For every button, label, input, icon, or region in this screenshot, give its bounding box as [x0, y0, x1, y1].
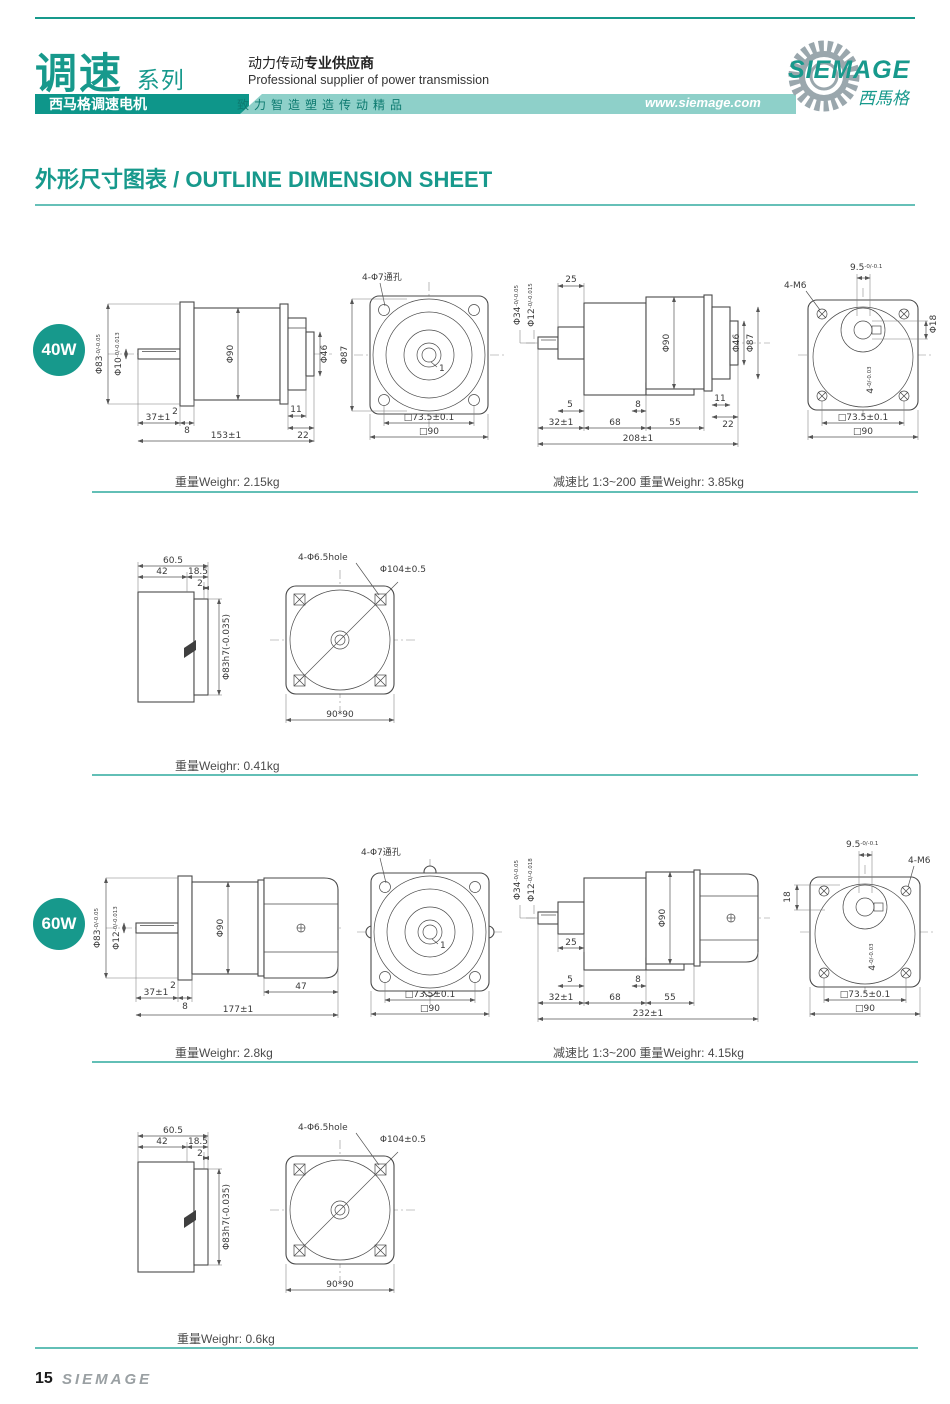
dim-label: Φ90 [216, 918, 226, 937]
tagline-en: Professional supplier of power transmiss… [248, 73, 489, 87]
dim-label: □73.5±0.1 [405, 990, 455, 1000]
dim-label: 42 [156, 1137, 167, 1147]
motor60-side-view: Φ83-0/-0.05 Φ12-0/-0.013 Φ90 2 37±1 8 47… [88, 840, 348, 1022]
dim-label: □90 [855, 1004, 875, 1014]
dim-label: 18 [783, 891, 793, 903]
dim-label: Φ87 [746, 334, 756, 353]
dim-label: 90*90 [326, 1280, 354, 1290]
dim-label: 60.5 [163, 556, 183, 566]
tagline-cn: 动力传动专业供应商 [248, 53, 374, 73]
badge-40w: 40W [33, 324, 85, 376]
dim-label: □73.5±0.1 [840, 990, 890, 1000]
gearmotor40-rear-view: 4-M6 9.5-0/-0.1 Φ18 4-0/-0.03 □73.5±0.1 … [778, 258, 950, 448]
dim-label: 25 [565, 275, 576, 285]
footer-brand: SIEMAGE [62, 1371, 152, 1388]
dim-label: 4-Φ6.5hole [298, 553, 348, 563]
dim-label: Φ90 [226, 344, 236, 363]
dim-label: 55 [664, 993, 675, 1003]
dim-label: 68 [609, 993, 621, 1003]
dim-label: 153±1 [211, 431, 241, 441]
dim-label: 2 [197, 1149, 203, 1159]
catalog-page: 调速 系列 西马格调速电机 动力传动专业供应商 Professional sup… [0, 0, 950, 1404]
dim-label: 55 [669, 418, 680, 428]
dim-label: 208±1 [623, 434, 653, 444]
weight-40w-fan: 重量Weighr: 0.41kg [175, 757, 280, 774]
dim-label: 8 [635, 975, 641, 985]
dim-label: Φ90 [658, 908, 668, 927]
dim-label: 4-Φ7通孔 [361, 847, 401, 858]
section-rule [35, 1347, 918, 1349]
dim-label: 2 [172, 407, 178, 417]
title-rule [35, 204, 915, 206]
dim-label: 8 [635, 400, 641, 410]
dim-label: Φ104±0.5 [380, 1135, 426, 1145]
dim-label: 4-Φ6.5hole [298, 1123, 348, 1133]
dim-label: 2 [197, 579, 203, 589]
motor40-front-view: 4-Φ7通孔 Φ87 1 □73.5±0.1 □90 [332, 258, 522, 448]
gearmotor60-side-view: Φ34-0/-0.05 Φ12-0/-0.018 25 Φ90 5 8 32±1… [508, 830, 778, 1025]
dim-label: □73.5±0.1 [838, 413, 888, 423]
weight-40w-motor: 重量Weighr: 2.15kg [175, 473, 280, 490]
fan40-side-view: 60.5 42 18.5 2 Φ83h7(-0.035) [128, 552, 253, 720]
dim-label: Φ83-0/-0.05 [93, 907, 103, 948]
dim-label: Φ83-0/-0.05 [95, 333, 105, 374]
dim-label: 47 [295, 982, 306, 992]
dim-label: Φ104±0.5 [380, 565, 426, 575]
dim-label: Φ10-0/-0.013 [114, 332, 124, 376]
dim-label: Φ34-0/-0.05 [513, 284, 523, 325]
dim-label: Φ83h7(-0.035) [222, 614, 232, 680]
dim-label: 9.5-0/-0.1 [850, 263, 882, 273]
weight-60w-motor: 重量Weighr: 2.8kg [175, 1044, 273, 1061]
dim-label: 2 [170, 981, 176, 991]
dim-label: □90 [853, 427, 873, 437]
dim-label: 8 [182, 1002, 188, 1012]
logo-wordmark: SIEMAGE [788, 56, 910, 85]
series-cn: 调速 [35, 50, 123, 97]
dim-label: 25 [565, 938, 576, 948]
series-title: 调速 系列 [35, 40, 185, 101]
fan60-front-view: 4-Φ6.5hole Φ104±0.5 90*90 [258, 1118, 428, 1303]
section-rule [92, 491, 918, 493]
dim-label: □90 [419, 427, 439, 437]
product-tab: 西马格调速电机 [35, 94, 249, 114]
weight-40w-gearmotor: 减速比 1:3~200 重量Weighr: 3.85kg [553, 473, 744, 490]
logo-cn: 西馬格 [858, 84, 909, 109]
page-title: 外形尺寸图表 / OUTLINE DIMENSION SHEET [35, 162, 492, 194]
badge-60w: 60W [33, 898, 85, 950]
gearmotor60-rear-view: 4-M6 9.5-0/-0.1 18 4-0/-0.03 □73.5±0.1 □… [780, 835, 950, 1025]
weight-60w-gearmotor: 减速比 1:3~200 重量Weighr: 4.15kg [553, 1044, 744, 1061]
dim-label: 4-Φ7通孔 [362, 272, 402, 283]
dim-label: □73.5±0.1 [404, 413, 454, 423]
website-text: www.siemage.com [645, 95, 761, 110]
section-rule [92, 774, 918, 776]
dim-label: 9.5-0/-0.1 [846, 840, 878, 850]
dim-label: 42 [156, 567, 167, 577]
dim-label: 4-M6 [908, 856, 931, 866]
dim-label: 60.5 [163, 1126, 183, 1136]
dim-label: 1 [439, 364, 445, 374]
slogan-text: 致力智造塑造传动精品 [237, 96, 407, 113]
header-top-rule [35, 17, 915, 19]
motor60-front-view: 4-Φ7通孔 1 □73.5±0.1 □90 [335, 835, 520, 1025]
dim-label: Φ12-0/-0.015 [527, 283, 537, 327]
dim-label: □90 [420, 1004, 440, 1014]
page-number: 15 [35, 1370, 53, 1388]
dim-label: 177±1 [223, 1005, 253, 1015]
dim-label: 4-M6 [784, 281, 807, 291]
dim-label: 8 [184, 426, 190, 436]
series-sub: 系列 [137, 67, 185, 93]
dim-label: Φ46 [732, 333, 742, 352]
dim-label: 32±1 [549, 418, 574, 428]
weight-60w-fan: 重量Weighr: 0.6kg [177, 1330, 275, 1347]
dim-label: Φ83h7(-0.035) [222, 1184, 232, 1250]
dim-label: 37±1 [144, 988, 169, 998]
dim-label: 18.5 [188, 1137, 208, 1147]
dim-label: Φ12-0/-0.018 [527, 858, 537, 902]
dim-label: 11 [714, 394, 725, 404]
dim-label: Φ87 [340, 346, 350, 365]
dim-label: 90*90 [326, 710, 354, 720]
dim-label: 1 [440, 941, 446, 951]
dim-label: 11 [290, 405, 301, 415]
fan40-front-view: 4-Φ6.5hole Φ104±0.5 90*90 [258, 548, 428, 733]
dim-label: 22 [297, 431, 308, 441]
gearmotor40-side-view: Φ34-0/-0.05 Φ12-0/-0.015 25 Φ90 Φ46 Φ87 … [508, 255, 778, 450]
dim-label: 18.5 [188, 567, 208, 577]
tagline-cn-bold: 专业供应商 [304, 55, 374, 71]
section-rule [92, 1061, 918, 1063]
dim-label: 5 [567, 400, 573, 410]
dim-label: 37±1 [146, 413, 171, 423]
dim-label: 32±1 [549, 993, 574, 1003]
motor40-side-view: Φ83-0/-0.05 Φ10-0/-0.013 Φ90 Φ46 2 37±1 … [90, 268, 340, 446]
dim-label: 232±1 [633, 1009, 663, 1019]
dim-label: Φ12-0/-0.013 [112, 906, 122, 950]
dim-label: Φ18 [929, 314, 939, 333]
dim-label: 22 [722, 420, 733, 430]
dim-label: 68 [609, 418, 621, 428]
dim-label: Φ34-0/-0.05 [513, 859, 523, 900]
tagline-cn-regular: 动力传动 [248, 55, 304, 71]
dim-label: Φ90 [662, 333, 672, 352]
fan60-side-view: 60.5 42 18.5 2 Φ83h7(-0.035) [128, 1122, 253, 1290]
dim-label: 5 [567, 975, 573, 985]
dim-label: Φ46 [320, 344, 330, 363]
